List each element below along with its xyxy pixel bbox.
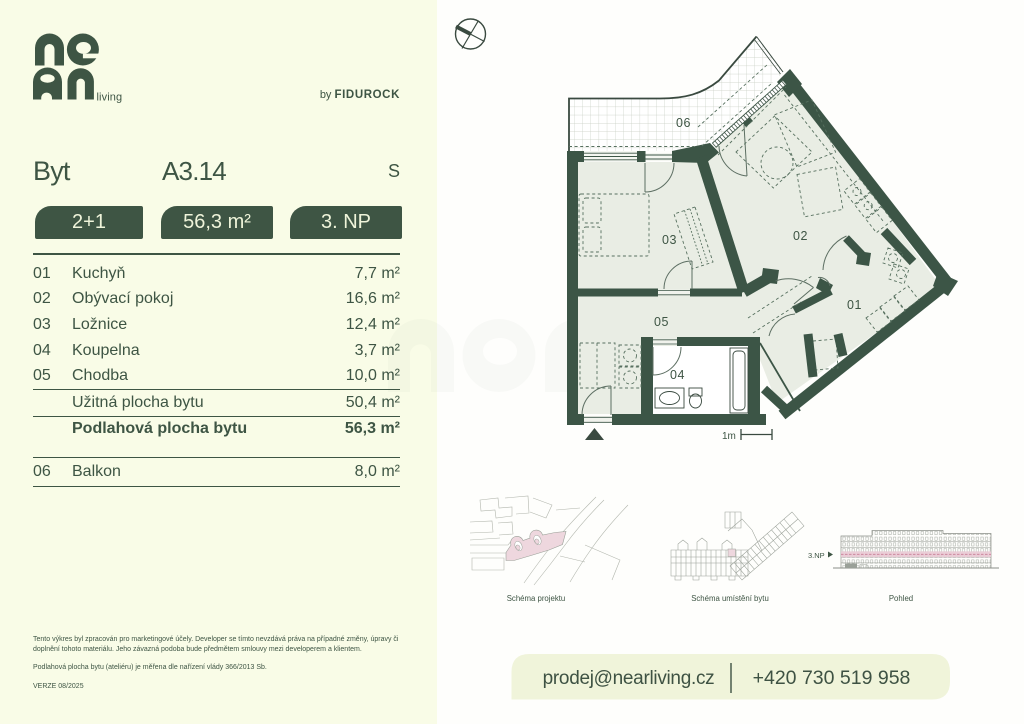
svg-text:+420 730 519 958: +420 730 519 958 [753, 667, 911, 689]
svg-text:02: 02 [793, 229, 808, 243]
svg-text:prodej@nearliving.cz: prodej@nearliving.cz [543, 668, 715, 689]
svg-text:Schéma umístění bytu: Schéma umístění bytu [691, 594, 769, 603]
svg-text:04: 04 [670, 368, 685, 382]
svg-text:03: 03 [662, 233, 677, 247]
svg-text:06: 06 [676, 116, 691, 130]
svg-text:Schéma projektu: Schéma projektu [507, 594, 566, 603]
svg-text:01: 01 [847, 298, 862, 312]
svg-text:1m: 1m [722, 431, 736, 442]
svg-text:3.NP: 3.NP [808, 551, 825, 560]
svg-text:05: 05 [654, 315, 669, 329]
svg-text:Pohled: Pohled [889, 594, 913, 603]
